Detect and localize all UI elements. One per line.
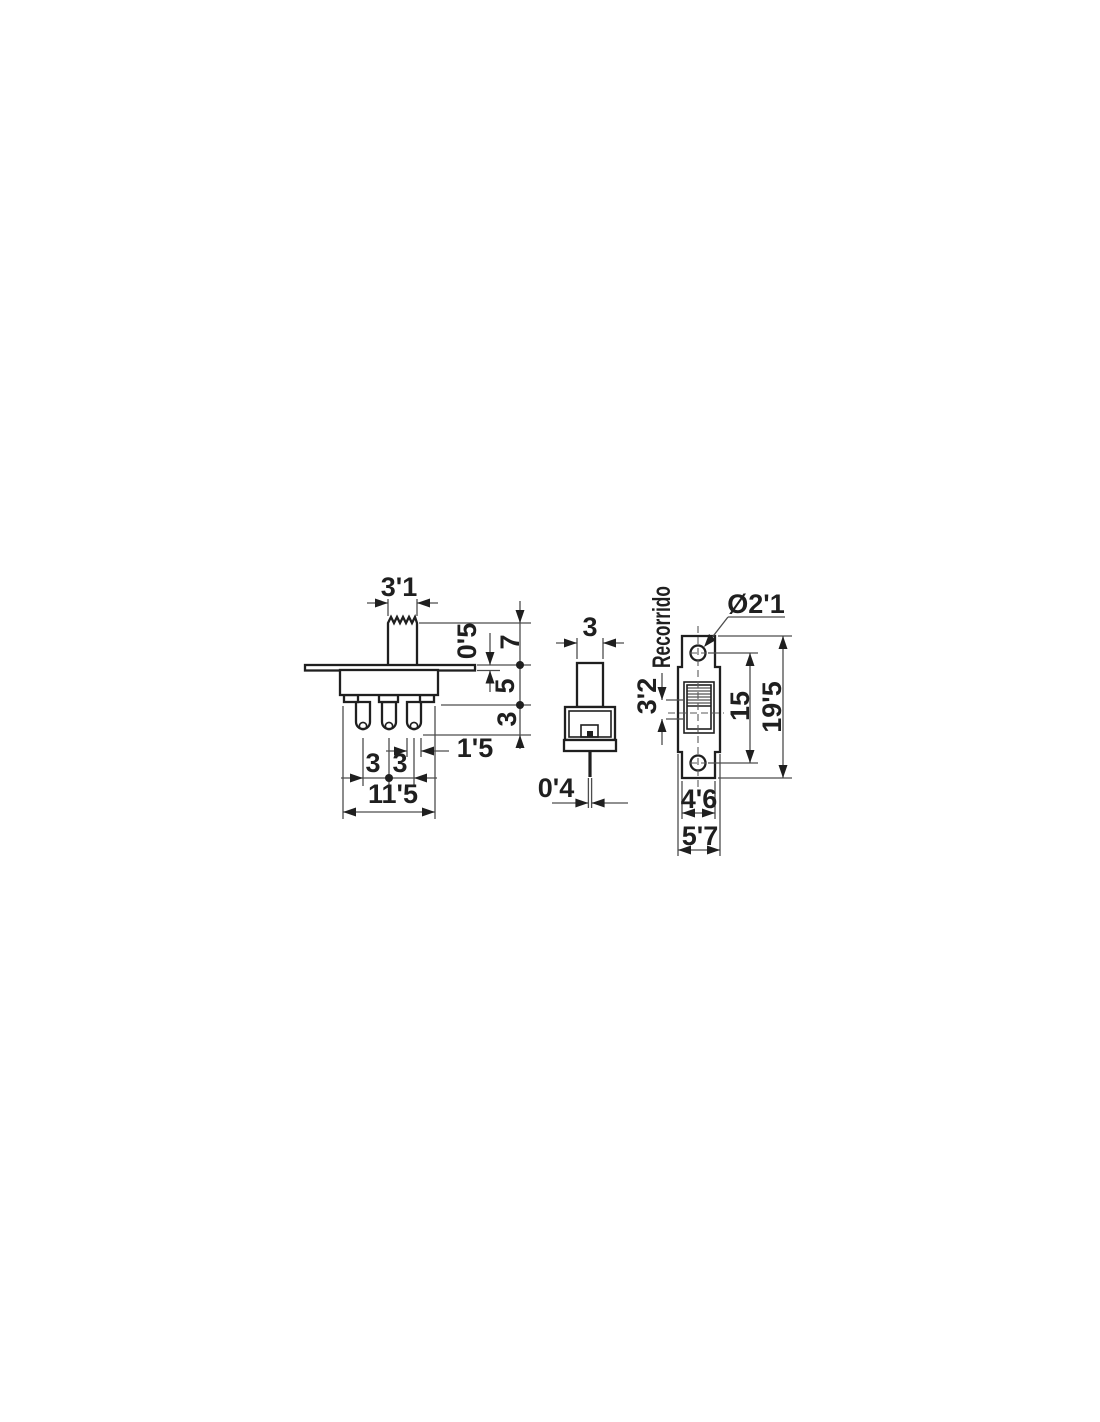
dim-pin-spacing-b: 3: [392, 748, 407, 778]
arrowhead: [603, 639, 616, 648]
arrowhead: [746, 653, 755, 666]
dim-terminal-width: 1'5: [457, 733, 493, 763]
arrowhead: [592, 799, 605, 808]
dim-body-height: 5: [490, 678, 520, 693]
front-actuator: [388, 617, 417, 665]
dim-actuator-height: 7: [495, 634, 525, 649]
chain-dot: [516, 661, 524, 669]
dim-flange-width: 5'7: [682, 821, 718, 851]
dim-overall-width: 11'5: [368, 779, 418, 809]
dim-actuator-depth: 3: [582, 612, 597, 642]
side-actuator: [577, 663, 603, 707]
arrowhead: [575, 799, 588, 808]
dim-overall-length: 19'5: [757, 681, 787, 732]
dim-hole-diameter: Ø2'1: [727, 589, 784, 619]
dim-pin-thickness: 0'4: [538, 773, 574, 803]
dim-body-width: 4'6: [681, 784, 717, 814]
arrowhead: [516, 735, 525, 748]
arrowhead: [350, 774, 363, 783]
dim-flange-thickness: 0'5: [452, 623, 482, 659]
side-view: 3 0'4: [538, 612, 628, 808]
dim-travel: 3'2: [632, 678, 662, 714]
dim-actuator-width: 3'1: [381, 572, 417, 602]
technical-drawing: 3'1 0'5 7 5 3: [0, 0, 1100, 1422]
side-detail-square: [587, 731, 593, 737]
arrowhead: [779, 636, 788, 649]
dim-terminal-length: 3: [492, 711, 522, 726]
page: 3'1 0'5 7 5 3: [0, 0, 1100, 1422]
front-view: [305, 617, 475, 730]
arrowhead: [658, 719, 667, 732]
side-base-strip: [564, 740, 616, 751]
terminal-1: [356, 702, 370, 729]
arrowhead: [343, 808, 356, 817]
arrowhead: [486, 652, 495, 665]
arrowhead: [746, 750, 755, 763]
arrowhead: [422, 808, 435, 817]
arrowhead: [516, 610, 525, 623]
dim-pin-spacing-a: 3: [365, 748, 380, 778]
terminal-2: [382, 702, 396, 729]
chain-dot: [516, 701, 524, 709]
dim-hole-spacing: 15: [725, 691, 755, 721]
arrowhead: [417, 599, 430, 608]
top-view: [668, 626, 724, 791]
front-body: [340, 670, 438, 695]
arrowhead: [421, 747, 434, 756]
terminal-3: [407, 702, 421, 729]
dim-travel-word: Recorrido: [648, 586, 676, 668]
arrowhead: [779, 765, 788, 778]
arrowhead: [564, 639, 577, 648]
